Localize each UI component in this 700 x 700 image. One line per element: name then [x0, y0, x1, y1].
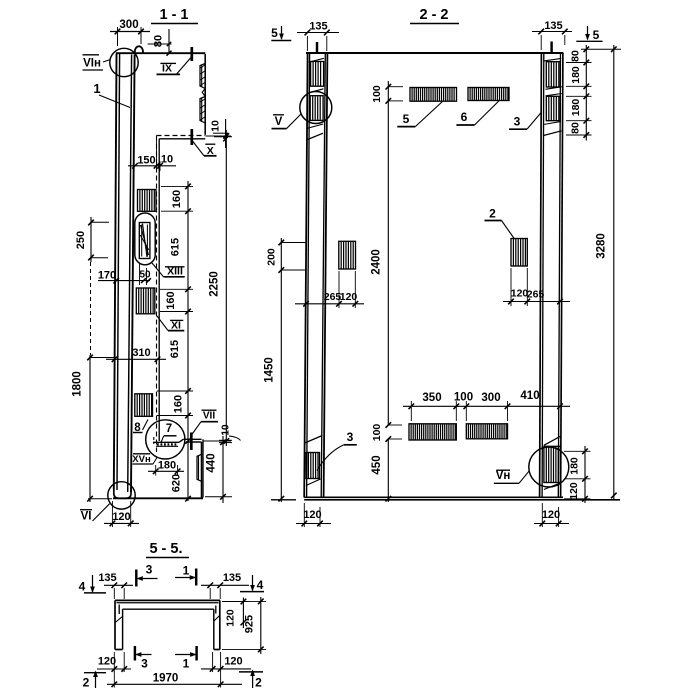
- svg-text:3: 3: [514, 115, 521, 129]
- svg-text:3: 3: [141, 657, 148, 671]
- svg-text:10: 10: [210, 120, 222, 132]
- svg-text:135: 135: [223, 572, 241, 584]
- svg-text:135: 135: [98, 572, 116, 584]
- svg-text:1450: 1450: [264, 357, 276, 383]
- svg-text:V: V: [275, 116, 283, 128]
- svg-text:1: 1: [183, 657, 190, 671]
- svg-text:XI: XI: [171, 320, 181, 332]
- svg-text:7: 7: [166, 423, 172, 435]
- svg-text:2250: 2250: [209, 271, 221, 297]
- svg-text:120: 120: [340, 291, 358, 303]
- svg-text:5 - 5.: 5 - 5.: [149, 541, 182, 557]
- svg-text:200: 200: [266, 248, 278, 266]
- svg-text:135: 135: [544, 20, 562, 32]
- svg-text:180: 180: [570, 99, 582, 117]
- svg-text:180: 180: [158, 460, 176, 472]
- svg-text:300: 300: [119, 19, 138, 31]
- svg-text:160: 160: [171, 190, 183, 208]
- svg-text:2: 2: [489, 207, 496, 221]
- svg-text:80: 80: [570, 122, 582, 134]
- svg-text:120: 120: [98, 656, 116, 668]
- svg-text:135: 135: [309, 21, 327, 33]
- svg-text:5: 5: [403, 112, 410, 126]
- svg-text:IX: IX: [162, 63, 172, 75]
- svg-text:150: 150: [137, 155, 155, 167]
- svg-text:2: 2: [83, 676, 90, 690]
- svg-text:350: 350: [422, 392, 441, 404]
- svg-text:100: 100: [371, 424, 383, 442]
- svg-text:2400: 2400: [371, 249, 383, 275]
- svg-text:170: 170: [98, 270, 116, 282]
- svg-text:3: 3: [146, 563, 153, 577]
- svg-text:160: 160: [173, 395, 185, 413]
- svg-text:10: 10: [220, 424, 231, 436]
- svg-text:925: 925: [244, 615, 256, 633]
- svg-text:410: 410: [520, 390, 539, 402]
- svg-text:100: 100: [454, 392, 473, 404]
- svg-text:615: 615: [170, 238, 182, 256]
- svg-text:300: 300: [481, 392, 500, 404]
- svg-text:VII: VII: [203, 411, 215, 422]
- svg-text:180: 180: [570, 66, 582, 84]
- svg-text:6: 6: [461, 110, 468, 124]
- svg-text:4: 4: [257, 578, 264, 592]
- svg-text:180: 180: [569, 457, 581, 475]
- svg-text:440: 440: [206, 453, 218, 472]
- svg-text:120: 120: [224, 656, 242, 668]
- svg-text:5: 5: [593, 28, 600, 42]
- svg-text:450: 450: [371, 455, 383, 474]
- svg-text:3: 3: [347, 430, 354, 444]
- svg-text:615: 615: [169, 340, 181, 358]
- svg-text:1800: 1800: [72, 371, 84, 397]
- svg-text:120: 120: [542, 509, 560, 521]
- svg-text:160: 160: [165, 291, 177, 309]
- svg-text:120: 120: [225, 609, 237, 627]
- svg-text:100: 100: [371, 85, 383, 103]
- svg-text:3280: 3280: [596, 233, 608, 259]
- svg-text:1970: 1970: [153, 673, 179, 685]
- svg-text:1: 1: [93, 81, 100, 96]
- svg-text:120: 120: [568, 482, 580, 500]
- svg-text:4: 4: [79, 580, 86, 594]
- svg-text:310: 310: [132, 347, 150, 359]
- svg-text:5: 5: [271, 26, 278, 40]
- svg-text:VI: VI: [81, 511, 92, 523]
- svg-text:120: 120: [303, 509, 321, 521]
- svg-text:1 - 1: 1 - 1: [159, 7, 188, 23]
- svg-text:80: 80: [153, 35, 165, 47]
- svg-text:1: 1: [183, 564, 190, 578]
- svg-text:VIн: VIн: [83, 58, 101, 70]
- svg-text:2 - 2: 2 - 2: [419, 7, 448, 23]
- svg-text:Vн: Vн: [496, 470, 511, 482]
- svg-text:250: 250: [75, 231, 87, 249]
- svg-text:80: 80: [570, 50, 582, 62]
- svg-text:620: 620: [171, 474, 183, 492]
- svg-text:2: 2: [255, 676, 262, 690]
